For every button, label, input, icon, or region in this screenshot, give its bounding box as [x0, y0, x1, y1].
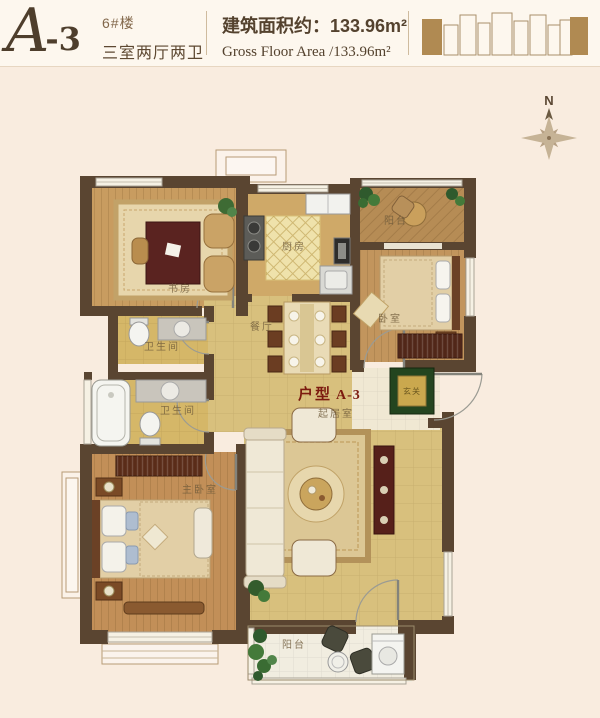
balcony-bottom-label: 阳台 [282, 638, 306, 651]
patio-table [328, 652, 348, 672]
area-chinese: 建筑面积约：133.96m² [222, 12, 407, 38]
living-label: 起居室 [318, 407, 354, 420]
left-bay-window [62, 472, 82, 598]
bed-headboard [452, 256, 460, 330]
kitchen-sink [320, 266, 352, 294]
bathtub [92, 380, 130, 446]
entry-door [434, 374, 482, 420]
dining-label: 餐厅 [250, 320, 274, 333]
armchair-bottom [292, 540, 336, 576]
bed-pillow-1 [436, 261, 450, 289]
study-furniture [116, 198, 237, 298]
fridge [306, 194, 350, 214]
study-label: 书房 [168, 282, 192, 295]
washing-machine [372, 634, 404, 674]
bedroom-label: 卧室 [378, 312, 402, 325]
master-bedroom-label: 主卧室 [182, 483, 218, 496]
balcony-divider-glass [384, 243, 442, 249]
compass-north-label: N [544, 93, 553, 108]
guest-chair-2 [204, 256, 234, 292]
master-dresser [116, 456, 202, 476]
unit-code-rest: -3 [45, 20, 81, 58]
toilet-lower [140, 412, 160, 445]
microwave [334, 238, 350, 264]
compass: N [521, 93, 577, 160]
entry-furniture: 玄关 [390, 368, 434, 414]
master-pillow-2 [102, 542, 126, 572]
bottom-bay-window [102, 644, 218, 664]
bathroom-lower-label: 卫生间 [160, 404, 196, 417]
area-info: 建筑面积约：133.96m² Gross Floor Area /133.96m… [222, 12, 407, 61]
layout-type: 三室两厅两卫 [102, 39, 204, 63]
header-divider-2 [408, 11, 409, 55]
master-chaise [194, 508, 212, 558]
sink-upper [158, 318, 206, 340]
area-english: Gross Floor Area /133.96m² [222, 44, 407, 61]
header-divider-1 [206, 11, 207, 55]
master-bench [124, 602, 204, 614]
floor-plan: 玄关 [0, 0, 600, 718]
master-headboard [92, 500, 100, 578]
stove [244, 216, 264, 260]
master-nightstand-1 [96, 478, 122, 496]
master-pillow-1 [102, 506, 126, 536]
kitchen-label: 厨房 [282, 240, 306, 253]
dining-furniture [268, 302, 346, 374]
building-number: 6#楼 [102, 13, 204, 33]
guest-chair-1 [204, 214, 234, 248]
balcony-top-label: 阳台 [384, 214, 408, 227]
unit-tag-prefix: 户型 [298, 385, 332, 403]
header: A -3 6#楼 三室两厅两卫 建筑面积约：133.96m² Gross Flo… [0, 0, 600, 67]
master-nightstand-2 [96, 582, 122, 600]
entry-label: 玄关 [403, 386, 421, 396]
coffee-table [300, 478, 332, 510]
bed-pillow-2 [436, 294, 450, 322]
tv-cabinet [374, 446, 394, 534]
unit-code-script: A [6, 0, 49, 62]
unit-code: A -3 [6, 0, 81, 62]
sofa [244, 428, 286, 588]
unit-info: 6#楼 三室两厅两卫 [102, 13, 204, 63]
building-silhouette-icon [420, 11, 590, 57]
floorplan-page: A -3 6#楼 三室两厅两卫 建筑面积约：133.96m² Gross Flo… [0, 0, 600, 718]
desk-chair [132, 238, 148, 264]
bedroom-wardrobe [398, 334, 462, 358]
sink-lower [136, 380, 206, 402]
bathroom-upper-label: 卫生间 [144, 340, 180, 353]
unit-tag: 户型 A-3 [298, 385, 361, 403]
unit-tag-code: A-3 [336, 388, 361, 403]
